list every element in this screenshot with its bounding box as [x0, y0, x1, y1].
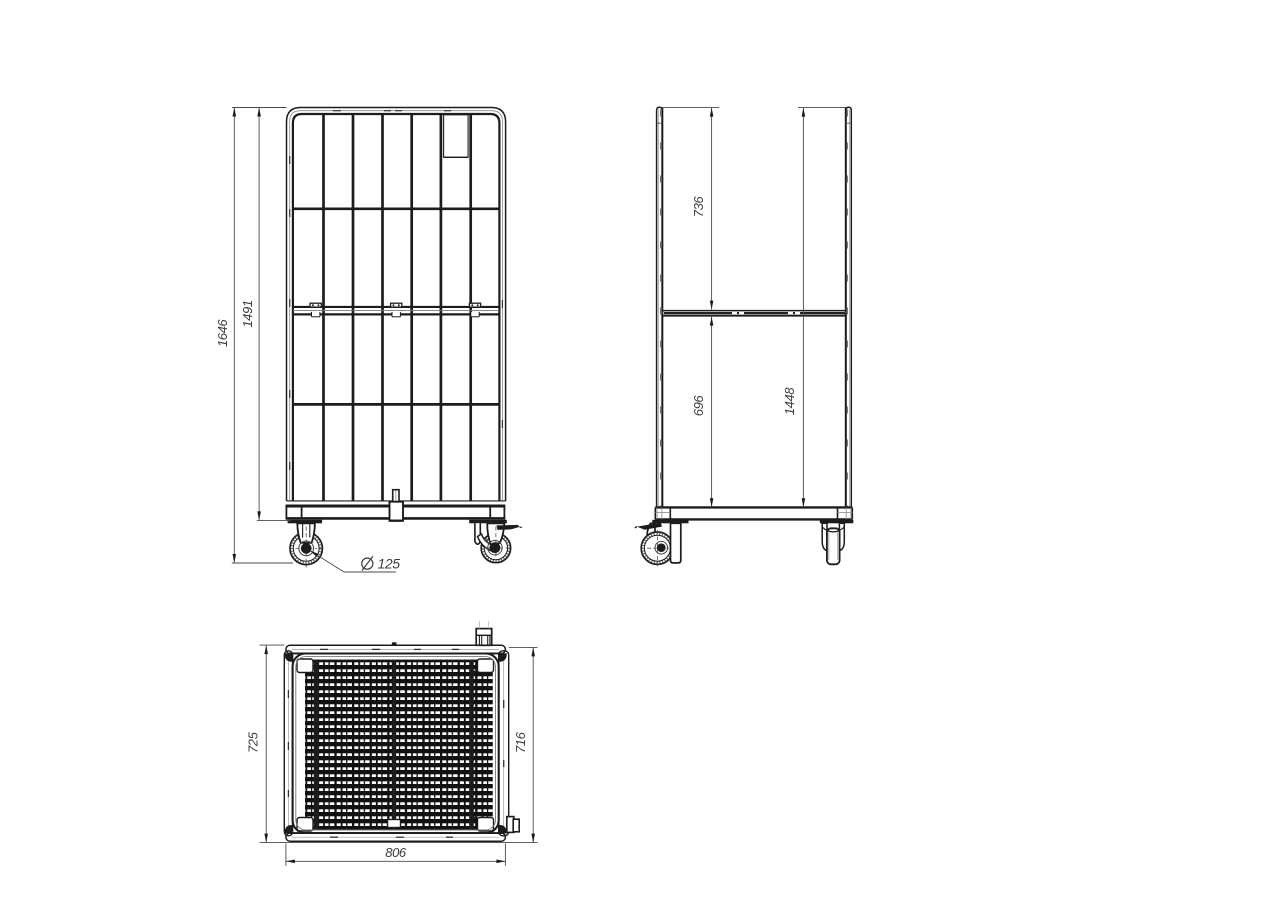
svg-text:696: 696: [691, 395, 706, 417]
svg-text:125: 125: [378, 555, 401, 571]
svg-text:806: 806: [385, 845, 407, 860]
svg-text:1646: 1646: [215, 319, 230, 347]
svg-text:736: 736: [691, 196, 706, 218]
svg-text:716: 716: [513, 731, 528, 753]
svg-text:725: 725: [246, 731, 261, 753]
svg-text:1448: 1448: [782, 387, 797, 415]
svg-text:1491: 1491: [240, 300, 255, 327]
